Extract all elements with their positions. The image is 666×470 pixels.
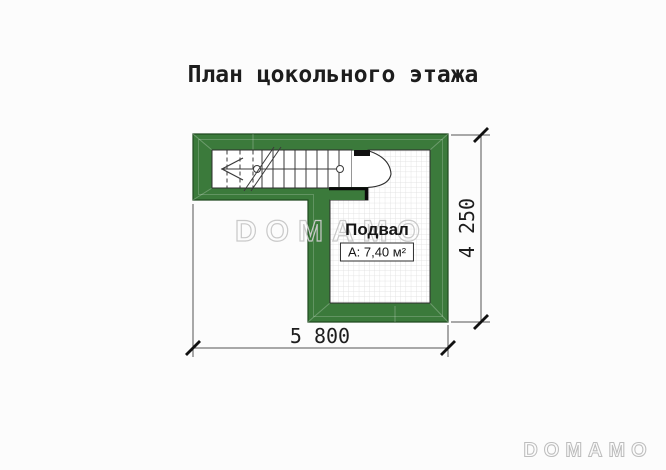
door-opening: [352, 151, 369, 188]
page-title: План цокольного этажа: [0, 62, 666, 88]
room-area-box: А: 7,40 м²: [340, 243, 414, 262]
door-lintel-mark: [354, 150, 370, 156]
stair-walkline-node: [337, 166, 344, 173]
floor-plan-page: DOMAMO План цокольного этажа Подвал А: 7…: [0, 0, 666, 470]
dimension-height-value: 4 250: [455, 198, 479, 258]
dimension-width-value: 5 800: [290, 324, 350, 348]
room-label: Подвал: [345, 220, 409, 240]
